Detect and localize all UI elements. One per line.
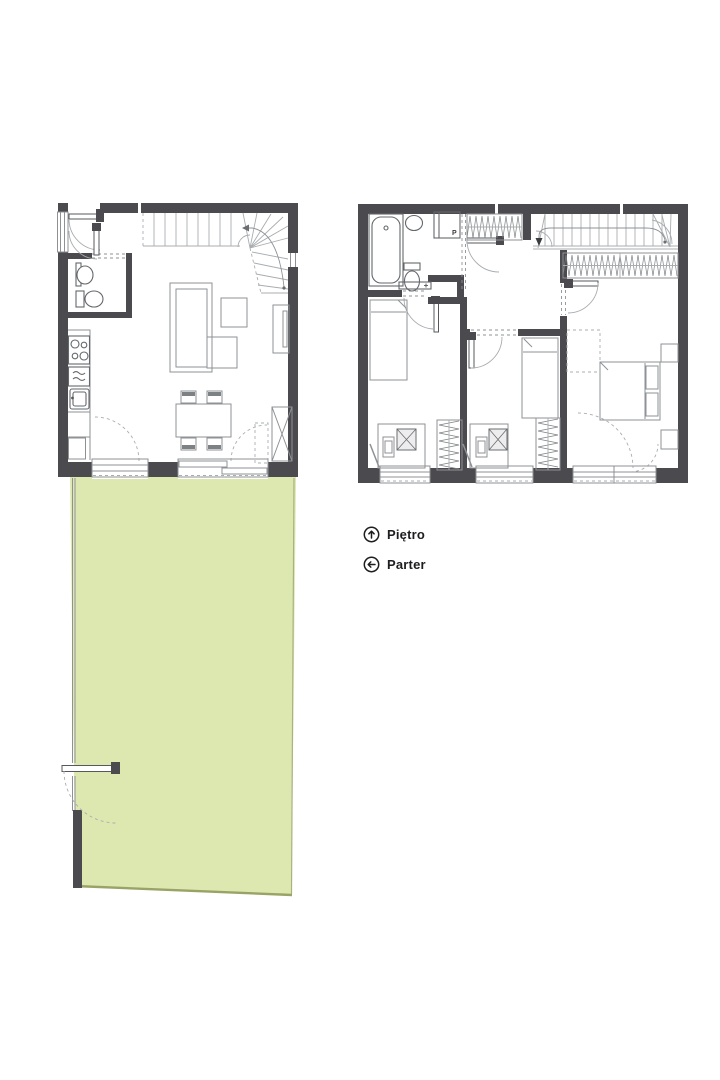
- master-wall-lower: [560, 316, 567, 470]
- staircase-ground: [143, 213, 288, 293]
- terrace-door-swing: [231, 425, 267, 461]
- bedroom-middle-door: [467, 332, 502, 368]
- wc-toilet: [76, 291, 103, 307]
- stairs-wall-stub: [523, 204, 531, 240]
- balcony-door-swing: [578, 413, 633, 468]
- upper-floor-plan: P: [358, 203, 688, 485]
- wc-sink: [77, 266, 93, 284]
- arrow-up-circle-icon: [363, 526, 380, 543]
- kitchen-dishwasher: [69, 367, 90, 386]
- bed-single: [522, 338, 558, 418]
- desk-chair: [489, 429, 507, 450]
- legend-item-pietro[interactable]: Piętro: [363, 526, 426, 543]
- window-side: [58, 212, 69, 252]
- bedroom-middle-wall-b: [518, 329, 567, 336]
- wall-left: [358, 204, 368, 483]
- arrow-left-circle-icon: [363, 556, 380, 573]
- bedroom-master: [567, 330, 678, 472]
- dining-set: [176, 391, 231, 450]
- staircase-upper: [533, 214, 678, 249]
- garden-wall-segment: [73, 810, 82, 888]
- tv-unit: [273, 305, 289, 353]
- desk: [370, 424, 425, 468]
- washing-machine: P: [434, 212, 460, 238]
- planned-wardrobe-outline: [567, 330, 600, 372]
- living-room: [170, 283, 292, 463]
- desk-chair: [397, 429, 416, 450]
- bathtub: [369, 214, 403, 286]
- stairs-direction-arrow: [536, 238, 543, 246]
- bedroom-master-door: [564, 279, 598, 313]
- legend-item-parter[interactable]: Parter: [363, 556, 426, 573]
- washing-machine-label: P: [452, 230, 457, 237]
- armchair: [221, 298, 247, 327]
- master-wardrobe: [563, 253, 678, 278]
- floorplan-drawing: P: [0, 0, 720, 1080]
- floor-legend: Piętro Parter: [363, 526, 426, 586]
- planned-furniture-outline: [255, 423, 268, 463]
- nightstand: [661, 344, 678, 362]
- bed-single: [370, 300, 407, 380]
- legend-label-parter: Parter: [387, 557, 426, 572]
- wardrobe: [536, 418, 560, 470]
- bed-double: [600, 362, 660, 420]
- wc-room: [68, 223, 132, 318]
- garden-lawn: [70, 477, 296, 894]
- bathroom-door: [467, 236, 504, 272]
- kitchen-sink: [70, 389, 89, 409]
- bathroom-sink: [406, 216, 423, 231]
- bathroom-wall: [368, 290, 402, 297]
- bedroom-middle: [463, 338, 560, 470]
- garden-area: [62, 477, 296, 895]
- bathroom-toilet: [404, 263, 420, 291]
- nightstand: [661, 430, 678, 449]
- legend-label-pietro: Piętro: [387, 527, 425, 542]
- bedroom-left-door: [404, 296, 440, 332]
- kitchen-cabinet: [69, 438, 86, 459]
- bedroom-left: [370, 300, 462, 470]
- garden-door-swing: [95, 417, 139, 461]
- kitchen-hob: [69, 336, 90, 364]
- floorplan-page: P: [0, 0, 720, 1080]
- wall-right: [678, 204, 688, 483]
- hall-wardrobe: [467, 214, 522, 240]
- desk: [463, 424, 508, 468]
- ground-floor-plan: [57, 202, 298, 479]
- wardrobe: [437, 420, 462, 470]
- kitchen: [68, 330, 139, 461]
